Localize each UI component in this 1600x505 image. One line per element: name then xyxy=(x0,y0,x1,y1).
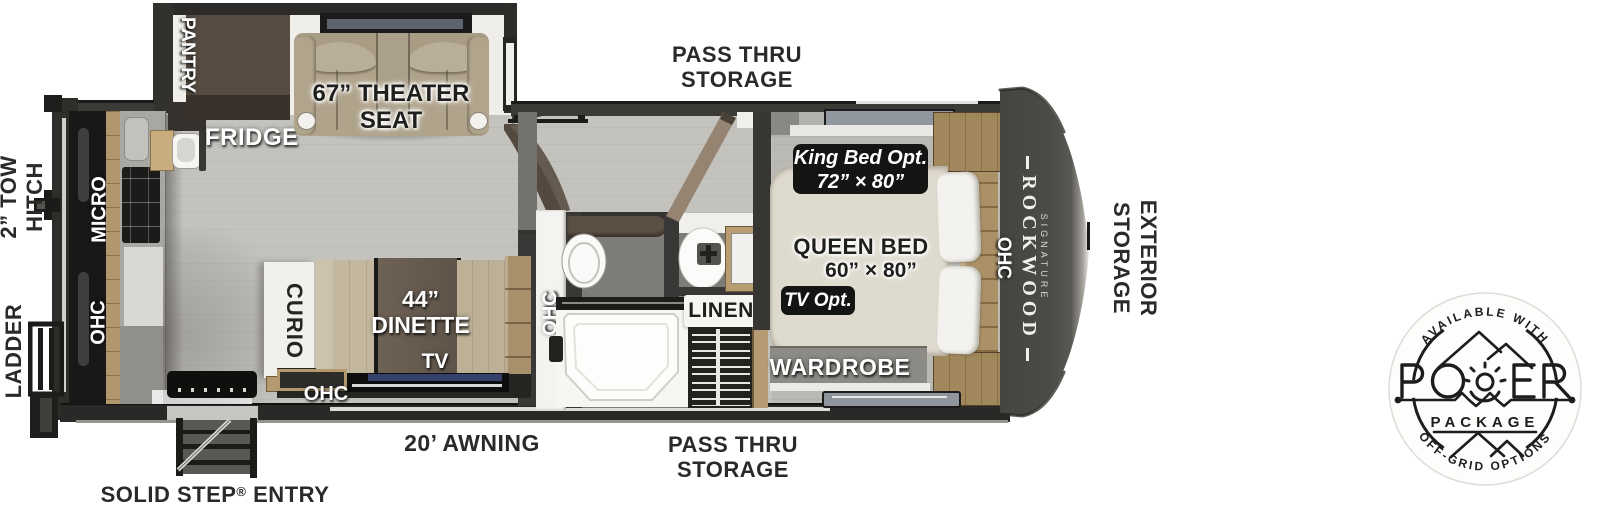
svg-text:PACKAGE: PACKAGE xyxy=(1431,414,1540,431)
